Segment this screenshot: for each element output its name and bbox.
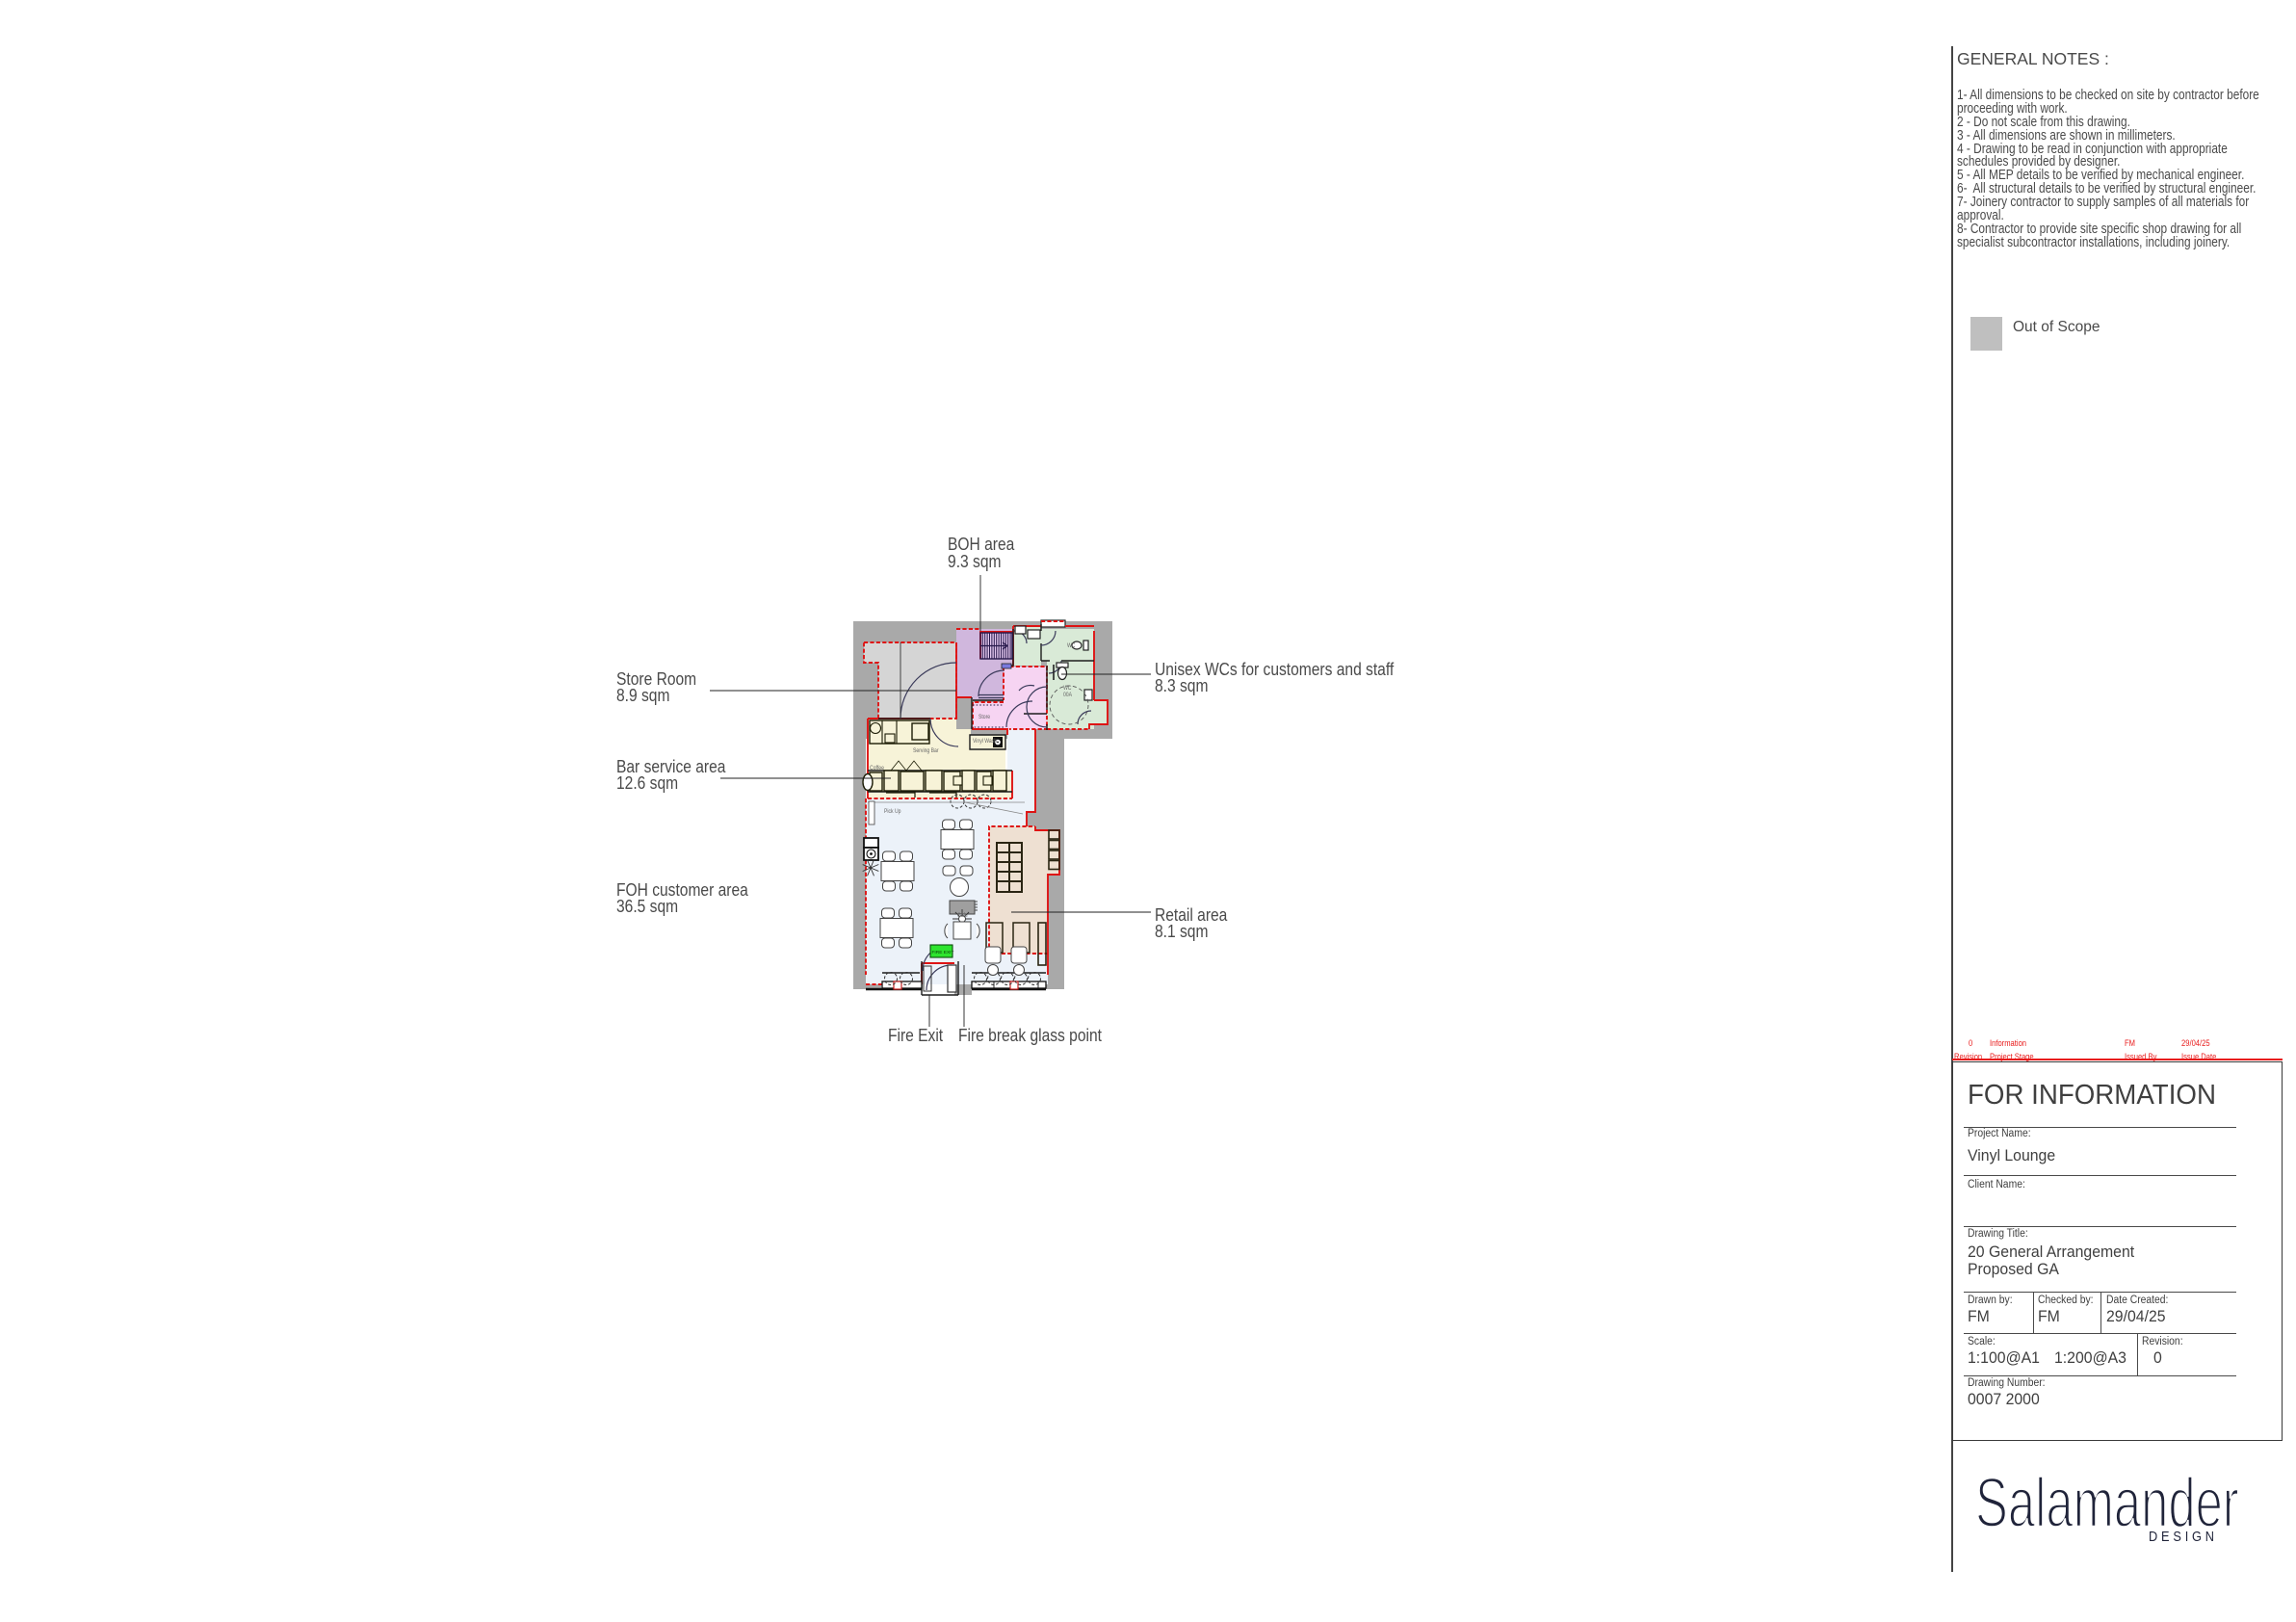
- svg-text:Cafe: Cafe: [957, 913, 968, 919]
- svg-text:Serving Bar: Serving Bar: [913, 748, 939, 754]
- svg-text:8.9 sqm: 8.9 sqm: [616, 686, 669, 706]
- svg-text:Store: Store: [978, 715, 990, 720]
- svg-text:Vinyl Wash: Vinyl Wash: [973, 739, 997, 745]
- svg-text:WC: WC: [1067, 643, 1075, 649]
- svg-text:Coffee: Coffee: [870, 766, 884, 772]
- svg-text:Fire break glass point: Fire break glass point: [958, 1026, 1102, 1046]
- svg-text:Pick Up: Pick Up: [884, 809, 901, 815]
- svg-text:8.1 sqm: 8.1 sqm: [1155, 922, 1208, 942]
- svg-text:Fire Exit: Fire Exit: [888, 1026, 943, 1046]
- svg-text:00A: 00A: [1063, 693, 1072, 698]
- svg-text:FIRE EXIT: FIRE EXIT: [932, 950, 954, 955]
- svg-text:9.3 sqm: 9.3 sqm: [948, 552, 1001, 572]
- svg-text:8.3 sqm: 8.3 sqm: [1155, 676, 1208, 696]
- svg-text:36.5 sqm: 36.5 sqm: [616, 897, 678, 917]
- svg-text:WC: WC: [1063, 686, 1071, 692]
- svg-text:12.6 sqm: 12.6 sqm: [616, 773, 678, 794]
